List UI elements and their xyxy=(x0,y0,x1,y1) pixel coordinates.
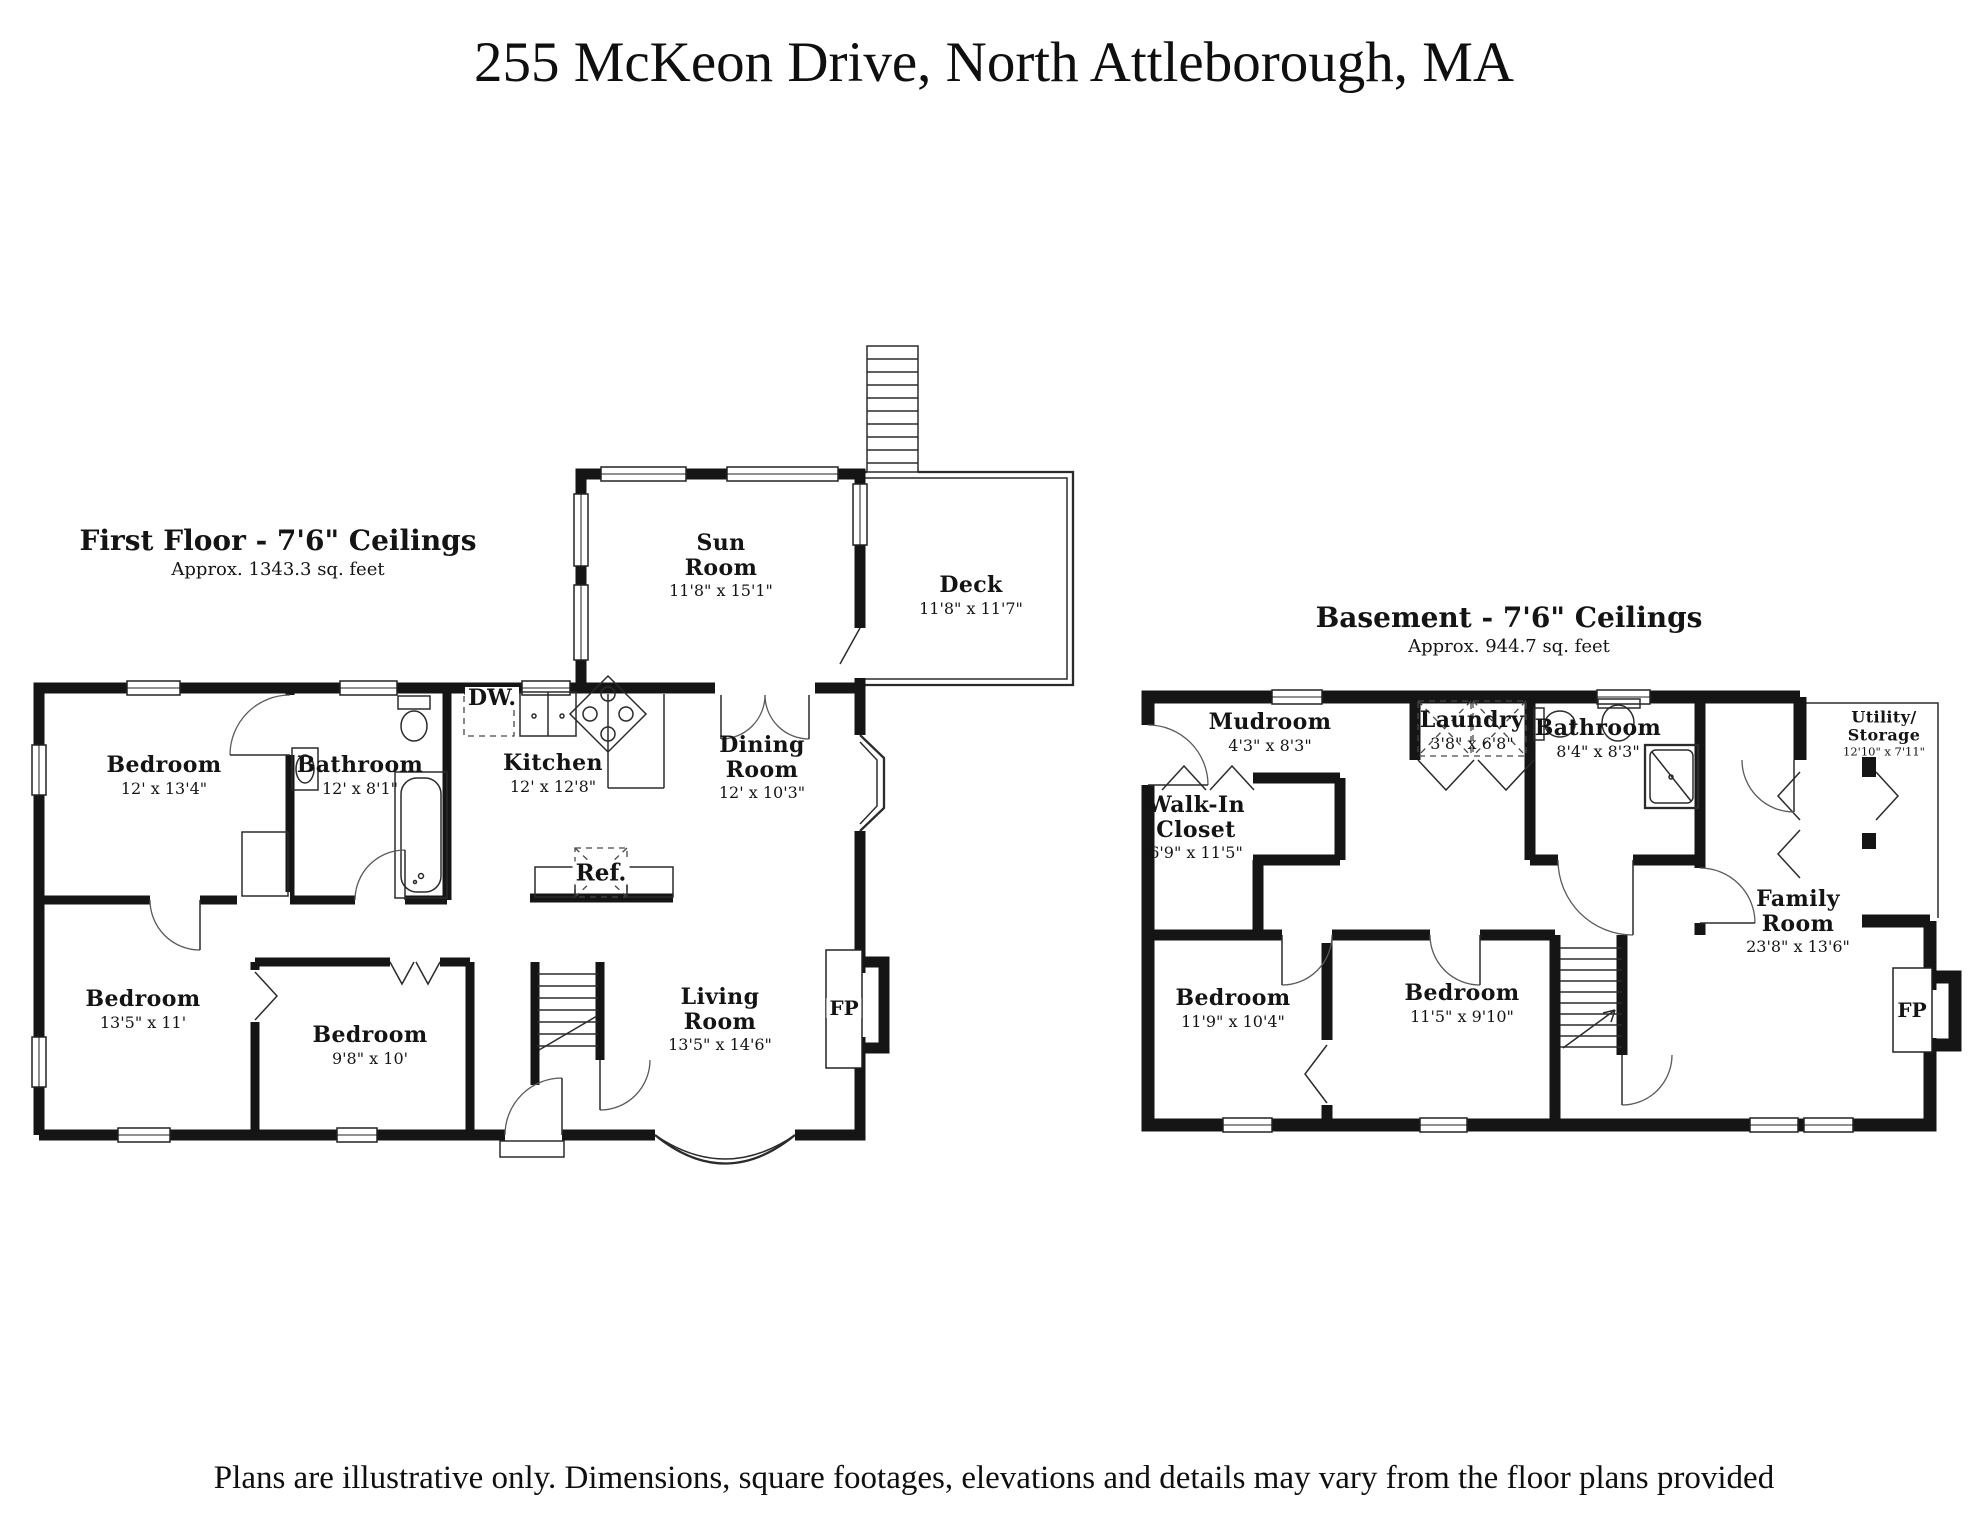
room-label-basement-bathroom: Bathroom 8'4" x 8'3" xyxy=(1535,716,1661,762)
refrigerator-label: Ref. xyxy=(573,862,630,885)
fireplace-label-first-floor: FP xyxy=(826,998,861,1018)
room-label-mudroom: Mudroom 4'3" x 8'3" xyxy=(1209,710,1332,756)
page-title: 255 McKeon Drive, North Attleborough, MA xyxy=(474,30,1514,95)
first-floor-heading-text: First Floor - 7'6" Ceilings xyxy=(79,524,476,557)
dishwasher-label: DW. xyxy=(465,687,519,709)
room-label-bedroom-3: Bedroom 9'8" x 10' xyxy=(313,1023,428,1069)
room-label-basement-bedroom-1: Bedroom 11'9" x 10'4" xyxy=(1176,986,1291,1032)
fireplace-label-basement: FP xyxy=(1894,1000,1929,1020)
room-label-utility-storage: Utility/ Storage 12'10" x 7'11" xyxy=(1843,709,1925,760)
room-label-basement-bedroom-2: Bedroom 11'5" x 9'10" xyxy=(1405,981,1520,1027)
room-label-bedroom-2: Bedroom 13'5" x 11' xyxy=(86,987,201,1033)
basement-area-text: Approx. 944.7 sq. feet xyxy=(1316,636,1703,657)
floor-plan-page: 255 McKeon Drive, North Attleborough, MA… xyxy=(0,0,1988,1536)
basement-heading-text: Basement - 7'6" Ceilings xyxy=(1316,601,1703,634)
room-label-dining-room: Dining Room 12' x 10'3" xyxy=(719,733,805,803)
first-floor-heading: First Floor - 7'6" Ceilings Approx. 1343… xyxy=(79,524,476,580)
room-label-bedroom-1: Bedroom 12' x 13'4" xyxy=(107,753,222,799)
room-label-bathroom: Bathroom 12' x 8'1" xyxy=(297,753,423,799)
room-label-walk-in-closet: Walk-In Closet 6'9" x 11'5" xyxy=(1147,793,1245,863)
first-floor-area-text: Approx. 1343.3 sq. feet xyxy=(79,559,476,580)
room-label-sun-room: Sun Room 11'8" x 15'1" xyxy=(669,531,773,601)
basement-heading: Basement - 7'6" Ceilings Approx. 944.7 s… xyxy=(1316,601,1703,657)
room-label-kitchen: Kitchen 12' x 12'8" xyxy=(503,751,603,797)
room-label-laundry: Laundry 3'8" x 6'8" xyxy=(1420,708,1524,754)
room-label-deck: Deck 11'8" x 11'7" xyxy=(919,573,1023,619)
disclaimer-text: Plans are illustrative only. Dimensions,… xyxy=(214,1460,1774,1497)
room-label-family-room: Family Room 23'8" x 13'6" xyxy=(1746,887,1850,957)
room-label-living-room: Living Room 13'5" x 14'6" xyxy=(668,985,772,1055)
